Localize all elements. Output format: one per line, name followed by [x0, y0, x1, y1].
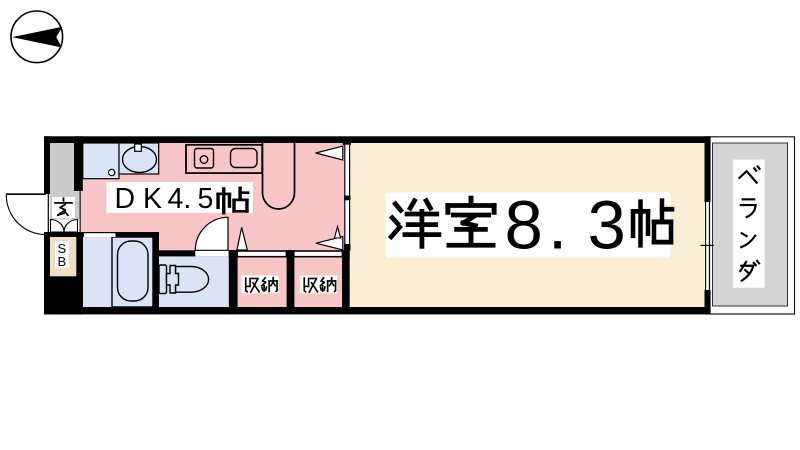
svg-text:.: .	[548, 186, 567, 263]
svg-text:4.: 4.	[168, 183, 192, 215]
svg-text:D: D	[115, 183, 136, 215]
svg-text:3: 3	[588, 186, 626, 263]
svg-text:B: B	[58, 254, 67, 269]
svg-text:8: 8	[505, 186, 543, 263]
svg-text:K: K	[143, 183, 162, 215]
svg-text:5: 5	[198, 183, 214, 215]
